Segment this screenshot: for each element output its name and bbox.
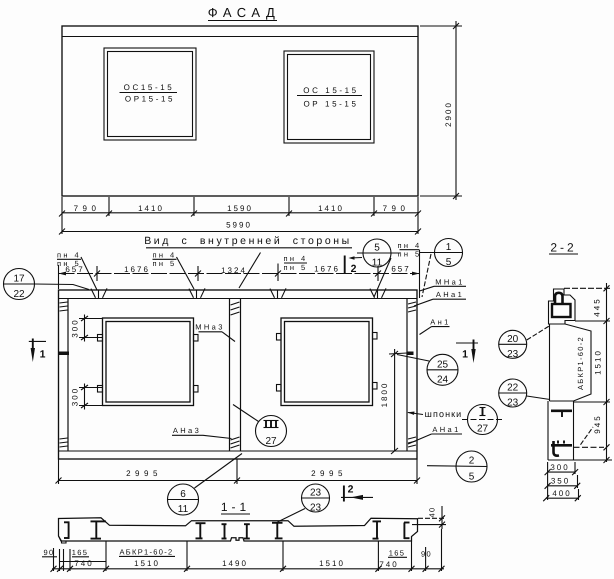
svg-text:165: 165 <box>72 548 88 557</box>
svg-text:ОР15-15: ОР15-15 <box>125 95 175 104</box>
svg-text:300: 300 <box>550 463 569 472</box>
svg-text:740: 740 <box>379 560 398 569</box>
svg-text:300: 300 <box>71 387 80 406</box>
svg-text:23: 23 <box>310 503 322 514</box>
svg-text:АБКР1-60-2: АБКР1-60-2 <box>120 548 174 557</box>
svg-text:пн 5: пн 5 <box>152 259 176 268</box>
svg-text:27: 27 <box>265 436 277 447</box>
svg-text:1410: 1410 <box>138 204 164 213</box>
svg-text:Вид с внутренней стороны: Вид с внутренней стороны <box>144 235 352 247</box>
svg-text:1800: 1800 <box>380 382 389 408</box>
svg-text:1676: 1676 <box>124 265 150 274</box>
svg-text:ОС15-15: ОС15-15 <box>124 83 175 92</box>
svg-text:11: 11 <box>372 258 383 269</box>
svg-text:1324: 1324 <box>221 266 247 275</box>
svg-text:2: 2 <box>351 263 357 275</box>
svg-text:1510: 1510 <box>319 559 345 568</box>
svg-text:400: 400 <box>552 489 571 498</box>
svg-text:1: 1 <box>446 242 452 253</box>
svg-text:2900: 2900 <box>444 101 453 127</box>
svg-text:ФАСАД: ФАСАД <box>208 5 281 20</box>
svg-text:24: 24 <box>437 374 449 385</box>
svg-text:23: 23 <box>507 398 519 409</box>
svg-text:Ан1: Ан1 <box>430 318 451 327</box>
svg-text:22: 22 <box>13 289 25 300</box>
svg-text:1: 1 <box>462 349 468 361</box>
svg-text:АНа1: АНа1 <box>432 425 460 434</box>
svg-text:90: 90 <box>44 548 55 557</box>
svg-text:40: 40 <box>428 507 437 518</box>
svg-text:шпонки: шпонки <box>425 409 463 419</box>
svg-text:20: 20 <box>507 334 519 345</box>
svg-text:740: 740 <box>74 559 93 568</box>
svg-text:МНа3: МНа3 <box>195 323 225 332</box>
svg-text:1490: 1490 <box>222 559 248 568</box>
svg-text:АБКР1-60-2: АБКР1-60-2 <box>576 336 585 390</box>
svg-text:ОС 15-15: ОС 15-15 <box>303 86 358 95</box>
svg-text:пн 5: пн 5 <box>397 250 421 259</box>
svg-text:22: 22 <box>507 383 519 394</box>
svg-text:1-1: 1-1 <box>221 500 250 514</box>
svg-text:АНа1: АНа1 <box>436 290 464 299</box>
svg-text:2995: 2995 <box>126 469 162 478</box>
svg-text:945: 945 <box>593 414 602 433</box>
svg-text:350: 350 <box>551 477 570 486</box>
svg-text:пн 4: пн 4 <box>283 254 307 263</box>
svg-text:1510: 1510 <box>594 349 603 375</box>
svg-text:27: 27 <box>477 424 489 435</box>
svg-text:165: 165 <box>389 549 405 558</box>
svg-text:2: 2 <box>348 484 354 496</box>
svg-text:2: 2 <box>469 456 475 467</box>
svg-text:АНа3: АНа3 <box>173 426 201 435</box>
svg-text:25: 25 <box>437 359 449 370</box>
svg-text:23: 23 <box>507 349 519 360</box>
svg-text:5: 5 <box>446 257 452 268</box>
svg-text:790: 790 <box>383 204 410 213</box>
svg-text:657: 657 <box>391 265 410 274</box>
svg-text:17: 17 <box>13 274 25 285</box>
svg-text:1: 1 <box>40 349 46 361</box>
svg-text:ОР 15-15: ОР 15-15 <box>303 100 358 109</box>
svg-text:1510: 1510 <box>134 559 160 568</box>
svg-text:445: 445 <box>593 297 602 316</box>
svg-text:6: 6 <box>180 489 186 500</box>
svg-text:5: 5 <box>469 472 475 483</box>
svg-text:90: 90 <box>421 550 432 559</box>
svg-text:790: 790 <box>74 204 101 213</box>
svg-text:1676: 1676 <box>314 265 340 274</box>
svg-text:1410: 1410 <box>318 204 344 213</box>
svg-text:5990: 5990 <box>226 221 252 230</box>
svg-text:2995: 2995 <box>311 469 347 478</box>
svg-text:МНа1: МНа1 <box>435 277 465 286</box>
svg-text:300: 300 <box>71 318 80 337</box>
svg-text:пн 5: пн 5 <box>283 263 307 272</box>
svg-text:1590: 1590 <box>227 204 253 213</box>
svg-text:11: 11 <box>178 504 189 515</box>
svg-text:пн 5: пн 5 <box>57 259 81 268</box>
svg-text:23: 23 <box>310 488 322 499</box>
svg-text:2-2: 2-2 <box>550 241 576 255</box>
svg-text:5: 5 <box>374 243 380 254</box>
